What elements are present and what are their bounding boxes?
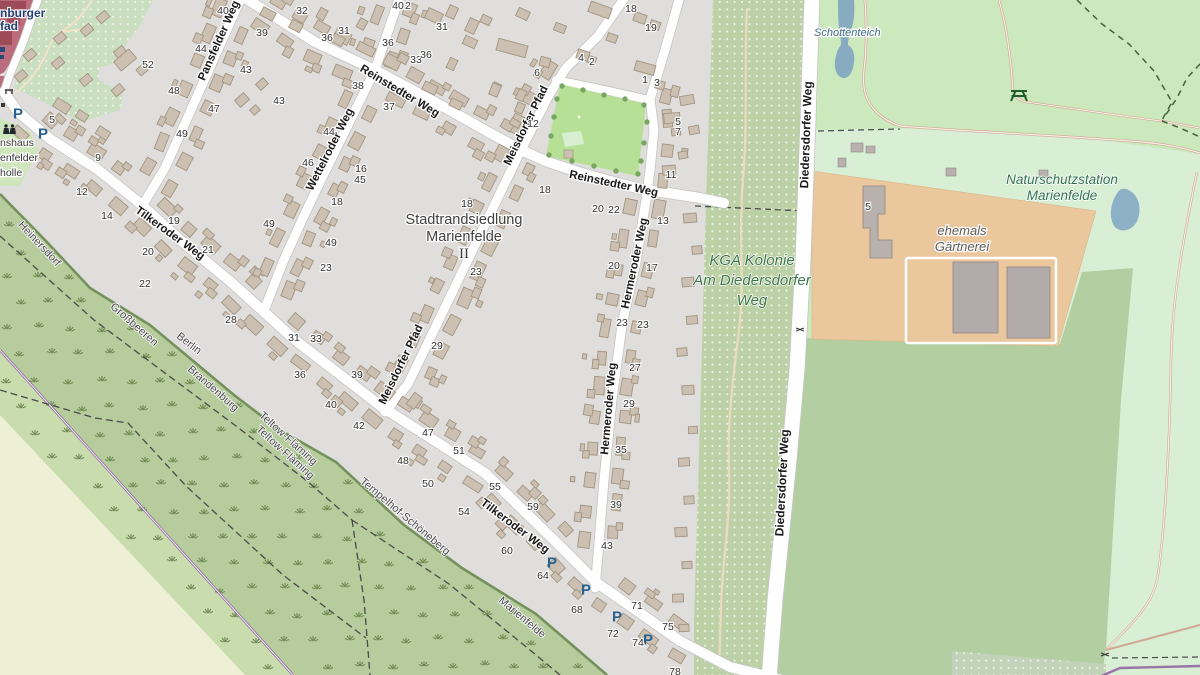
svg-text:21: 21 bbox=[202, 244, 214, 256]
svg-text:12: 12 bbox=[527, 118, 539, 130]
svg-text:37: 37 bbox=[383, 101, 395, 113]
svg-text:5: 5 bbox=[865, 201, 871, 213]
svg-text:31: 31 bbox=[338, 25, 350, 37]
svg-text:22: 22 bbox=[608, 204, 620, 216]
svg-text:39: 39 bbox=[351, 369, 363, 381]
svg-text:20: 20 bbox=[592, 203, 604, 215]
svg-text:Am Diedersdorfer: Am Diedersdorfer bbox=[692, 272, 812, 289]
svg-text:39: 39 bbox=[610, 499, 622, 511]
svg-text:72: 72 bbox=[607, 628, 619, 640]
svg-text:45: 45 bbox=[354, 174, 366, 186]
svg-text:40: 40 bbox=[392, 0, 404, 12]
svg-text:19: 19 bbox=[168, 215, 180, 227]
svg-text:enfelder: enfelder bbox=[0, 152, 38, 164]
svg-text:II: II bbox=[459, 246, 469, 262]
svg-text:35: 35 bbox=[615, 444, 627, 456]
svg-text:P: P bbox=[13, 106, 23, 123]
svg-text:13: 13 bbox=[657, 215, 669, 227]
svg-text:64: 64 bbox=[537, 570, 549, 582]
svg-text:40: 40 bbox=[217, 5, 229, 17]
svg-text:27: 27 bbox=[629, 362, 641, 374]
svg-text:32: 32 bbox=[296, 5, 308, 17]
svg-text:29: 29 bbox=[623, 398, 635, 410]
svg-text:52: 52 bbox=[142, 59, 154, 71]
svg-text:9: 9 bbox=[95, 152, 101, 164]
svg-text:74: 74 bbox=[632, 637, 644, 649]
svg-text:nburger: nburger bbox=[0, 6, 46, 20]
svg-text:43: 43 bbox=[601, 540, 613, 552]
svg-text:23: 23 bbox=[320, 262, 332, 274]
svg-text:60: 60 bbox=[501, 545, 513, 557]
svg-text:18: 18 bbox=[331, 196, 343, 208]
svg-text:48: 48 bbox=[397, 455, 409, 467]
svg-text:78: 78 bbox=[669, 666, 681, 675]
svg-text:6: 6 bbox=[534, 67, 540, 79]
svg-text:23: 23 bbox=[470, 266, 482, 278]
svg-text:20: 20 bbox=[142, 246, 154, 258]
svg-text:ehemals: ehemals bbox=[937, 223, 987, 238]
svg-text:18: 18 bbox=[539, 184, 551, 196]
svg-text:KGA Kolonie: KGA Kolonie bbox=[709, 252, 794, 269]
svg-text:Marienfelde: Marienfelde bbox=[426, 229, 502, 245]
svg-text:3: 3 bbox=[654, 77, 660, 89]
svg-text:Marienfelde: Marienfelde bbox=[1027, 188, 1098, 203]
svg-text:5: 5 bbox=[49, 114, 55, 126]
svg-text:18: 18 bbox=[625, 3, 637, 15]
svg-text:Gärtnerei: Gärtnerei bbox=[935, 239, 990, 254]
svg-text:47: 47 bbox=[208, 103, 220, 115]
svg-text:fad: fad bbox=[0, 19, 18, 33]
svg-text:18: 18 bbox=[461, 198, 473, 210]
svg-text:Weg: Weg bbox=[737, 292, 768, 309]
svg-text:Naturschutzstation: Naturschutzstation bbox=[1006, 172, 1118, 187]
svg-text:nshaus: nshaus bbox=[0, 137, 34, 149]
svg-text:19: 19 bbox=[645, 22, 657, 34]
svg-text:Stadtrandsiedlung: Stadtrandsiedlung bbox=[406, 212, 523, 228]
svg-text:55: 55 bbox=[489, 481, 501, 493]
svg-text:22: 22 bbox=[139, 278, 151, 290]
svg-text:40: 40 bbox=[325, 399, 337, 411]
svg-text:36: 36 bbox=[420, 49, 432, 61]
svg-text:33: 33 bbox=[310, 333, 322, 345]
svg-text:68: 68 bbox=[571, 604, 583, 616]
svg-text:50: 50 bbox=[422, 478, 434, 490]
svg-text:44: 44 bbox=[323, 126, 335, 138]
svg-text:36: 36 bbox=[321, 32, 333, 44]
svg-text:29: 29 bbox=[431, 340, 443, 352]
svg-text:P: P bbox=[643, 632, 653, 649]
svg-text:49: 49 bbox=[325, 237, 337, 249]
svg-text:36: 36 bbox=[382, 37, 394, 49]
svg-text:7: 7 bbox=[675, 126, 681, 138]
svg-text:54: 54 bbox=[458, 506, 470, 518]
svg-text:51: 51 bbox=[453, 445, 465, 457]
svg-text:11: 11 bbox=[666, 169, 677, 181]
svg-text:P: P bbox=[581, 582, 591, 599]
svg-text:P: P bbox=[547, 555, 557, 572]
svg-text:28: 28 bbox=[225, 314, 237, 326]
svg-text:59: 59 bbox=[527, 501, 539, 513]
svg-text:31: 31 bbox=[288, 332, 300, 344]
svg-text:P: P bbox=[612, 609, 622, 626]
svg-text:Schottenteich: Schottenteich bbox=[814, 27, 881, 39]
svg-text:holle: holle bbox=[0, 167, 22, 179]
svg-text:44: 44 bbox=[195, 43, 207, 55]
svg-text:46: 46 bbox=[302, 157, 314, 169]
svg-text:48: 48 bbox=[168, 85, 180, 97]
svg-text:4: 4 bbox=[578, 52, 584, 64]
svg-text:16: 16 bbox=[355, 163, 367, 175]
svg-text:39: 39 bbox=[256, 27, 268, 39]
svg-text:20: 20 bbox=[608, 260, 620, 272]
svg-text:42: 42 bbox=[353, 420, 365, 432]
svg-text:12: 12 bbox=[76, 186, 88, 198]
svg-text:49: 49 bbox=[176, 128, 188, 140]
svg-text:14: 14 bbox=[101, 210, 113, 222]
svg-text:75: 75 bbox=[662, 621, 674, 633]
svg-text:49: 49 bbox=[263, 218, 275, 230]
svg-text:23: 23 bbox=[616, 317, 628, 329]
svg-text:43: 43 bbox=[273, 95, 285, 107]
svg-text:71: 71 bbox=[631, 600, 643, 612]
svg-text:47: 47 bbox=[422, 427, 434, 439]
svg-text:36: 36 bbox=[294, 369, 306, 381]
svg-text:2: 2 bbox=[589, 56, 595, 68]
svg-text:P: P bbox=[38, 126, 48, 143]
svg-text:31: 31 bbox=[436, 21, 448, 33]
svg-text:23: 23 bbox=[637, 319, 649, 331]
svg-text:17: 17 bbox=[646, 262, 658, 274]
svg-text:38: 38 bbox=[352, 80, 364, 92]
svg-text:1: 1 bbox=[642, 74, 648, 86]
svg-text:43: 43 bbox=[240, 64, 252, 76]
